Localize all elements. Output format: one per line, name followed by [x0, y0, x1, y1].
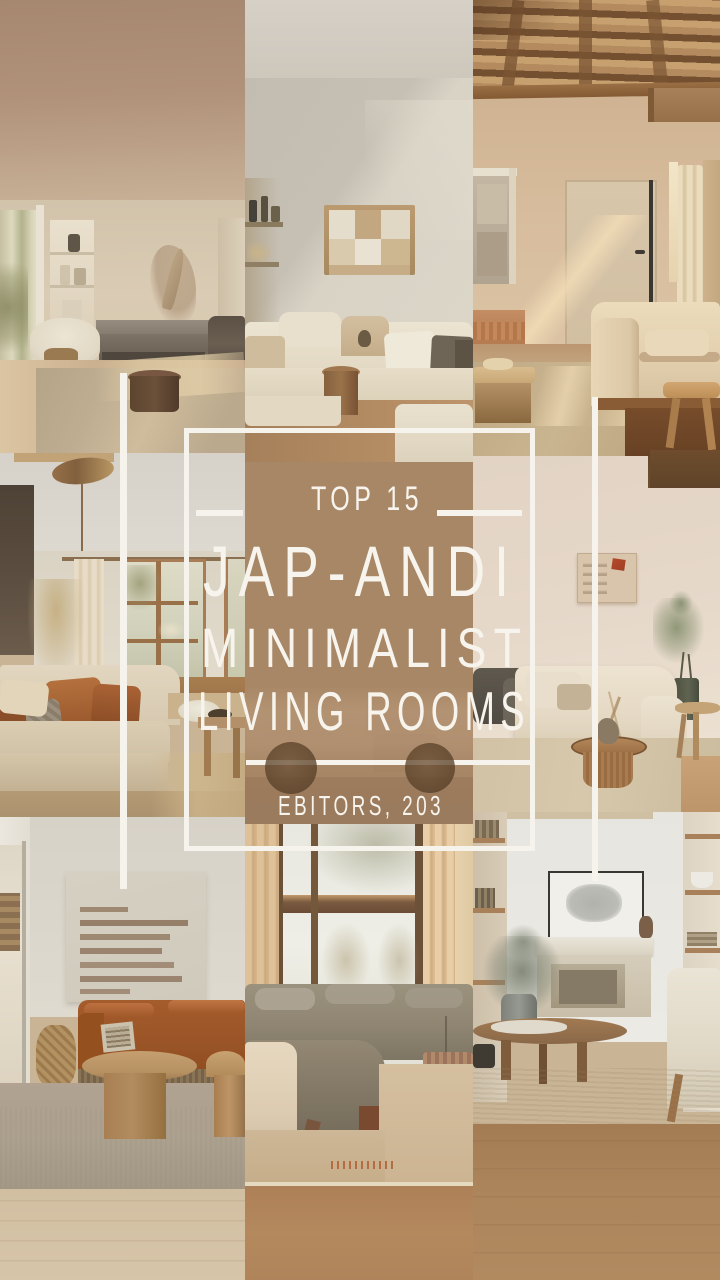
- svg-text:TOP 15: TOP 15: [311, 480, 423, 518]
- svg-text:EBITORS, 203: EBITORS, 203: [278, 790, 444, 821]
- svg-text:LIVING ROOMS: LIVING ROOMS: [198, 680, 530, 742]
- svg-text:JAP-ANDI: JAP-ANDI: [203, 533, 518, 612]
- svg-text:MINIMALIST: MINIMALIST: [201, 616, 528, 679]
